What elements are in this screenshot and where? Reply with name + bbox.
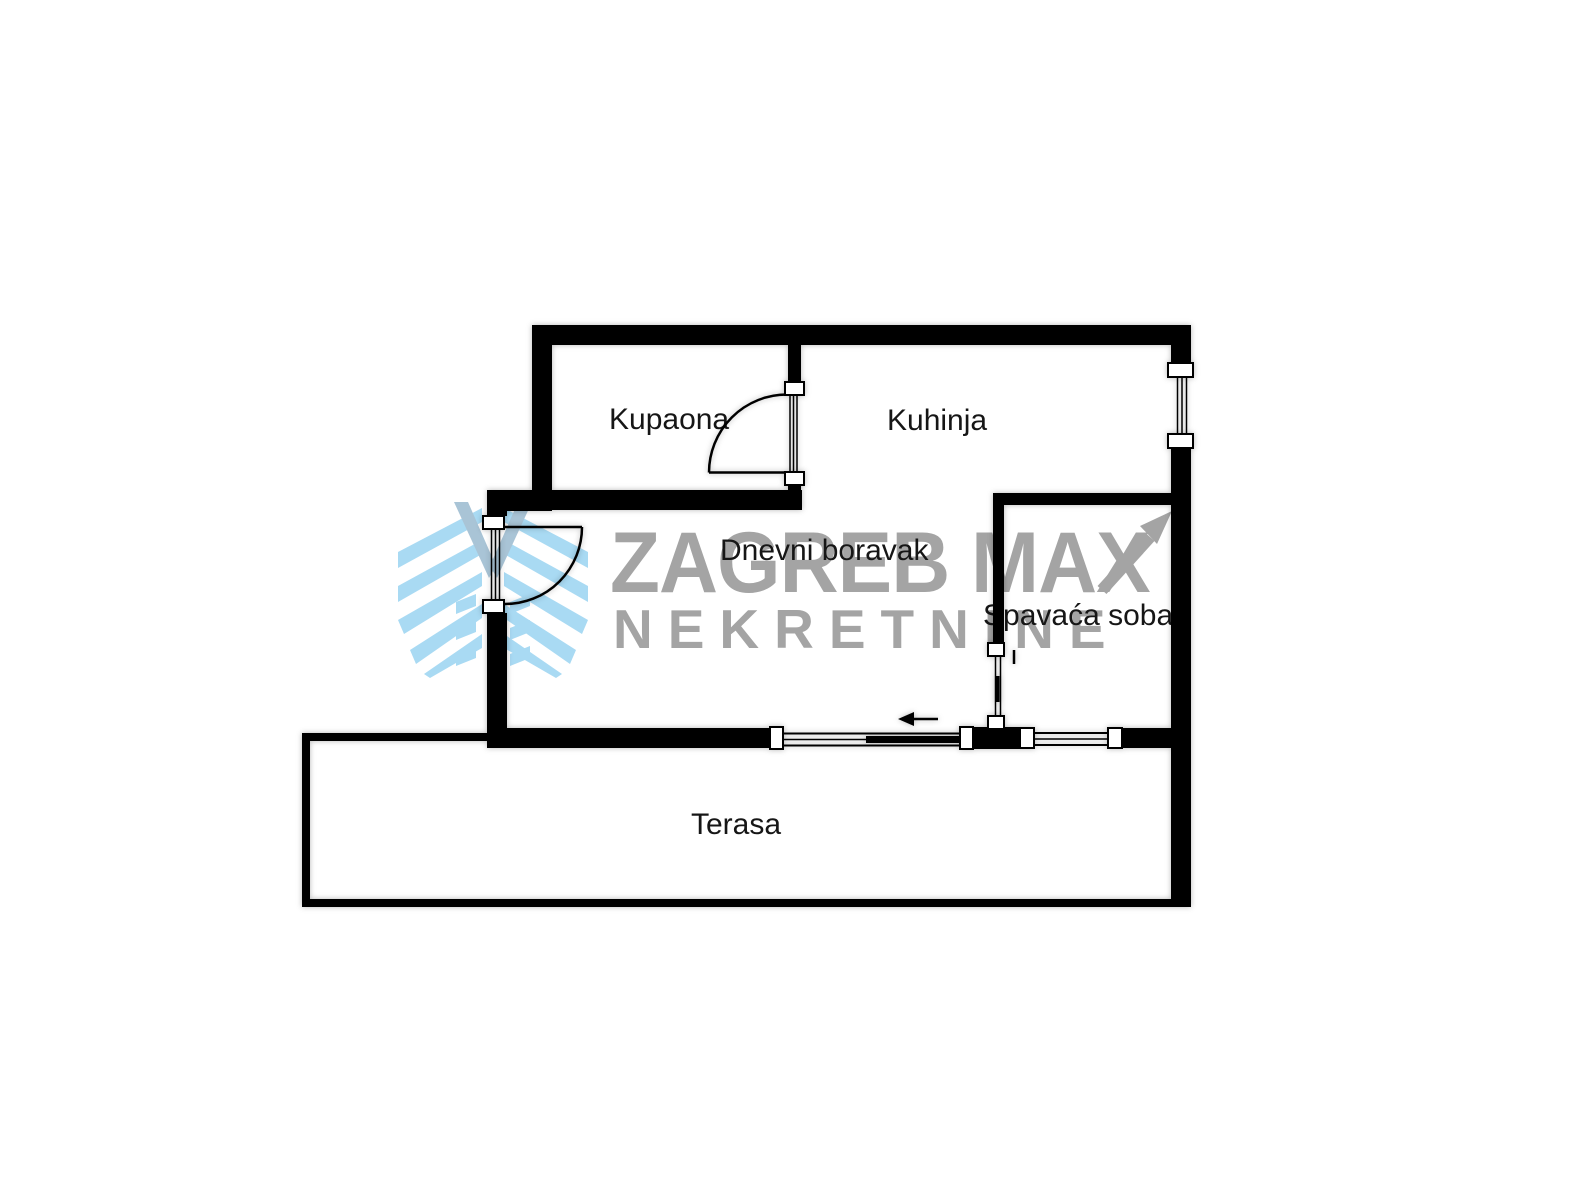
floor-plan-canvas: ZAGREB MAX NEKRETNINE Kupaona Kuhinja Dn… [0,0,1589,1184]
wall-bedroom-left-upper [993,505,1004,643]
walls [302,325,1191,907]
wall-bedroom-top [993,493,1191,505]
terrace-sliding-door [770,712,973,749]
entry-door [483,516,582,613]
wall-living-left-lower [487,613,507,748]
window-cap [1020,728,1034,748]
wall-top [532,325,1191,345]
terrace-left-line [302,733,310,907]
bedroom-door [988,643,1014,729]
terrace-bottom-line [302,899,1191,907]
wall-kupaona-left [532,325,552,511]
door-swing-arc [505,527,582,604]
door-cap [785,472,804,485]
door-swing-arc [709,395,787,473]
door-cap [483,600,504,613]
door-cap [988,643,1004,656]
window-cap [1108,728,1122,748]
door-cap [988,716,1004,729]
floor-plan-linework [0,0,1589,1184]
door-cap [785,382,804,395]
bedroom-window [1020,728,1122,748]
wall-bedroom-bottom-right [1122,728,1191,748]
window-cap [1168,434,1193,448]
door-panel [995,676,1000,702]
wall-living-bottom [487,728,772,748]
door-cap [483,516,504,529]
sliding-panel [866,736,960,743]
terrace-top-line [302,733,487,741]
window-cap [1168,363,1193,377]
wall-right [1171,448,1191,907]
kitchen-window [1168,363,1193,448]
bathroom-door [709,382,804,485]
slide-direction-arrow-icon [898,712,938,726]
wall-kupaona-bottom [532,490,802,510]
wall-junction-block [971,727,1026,749]
window-cap [960,727,973,749]
window-cap [770,727,783,749]
